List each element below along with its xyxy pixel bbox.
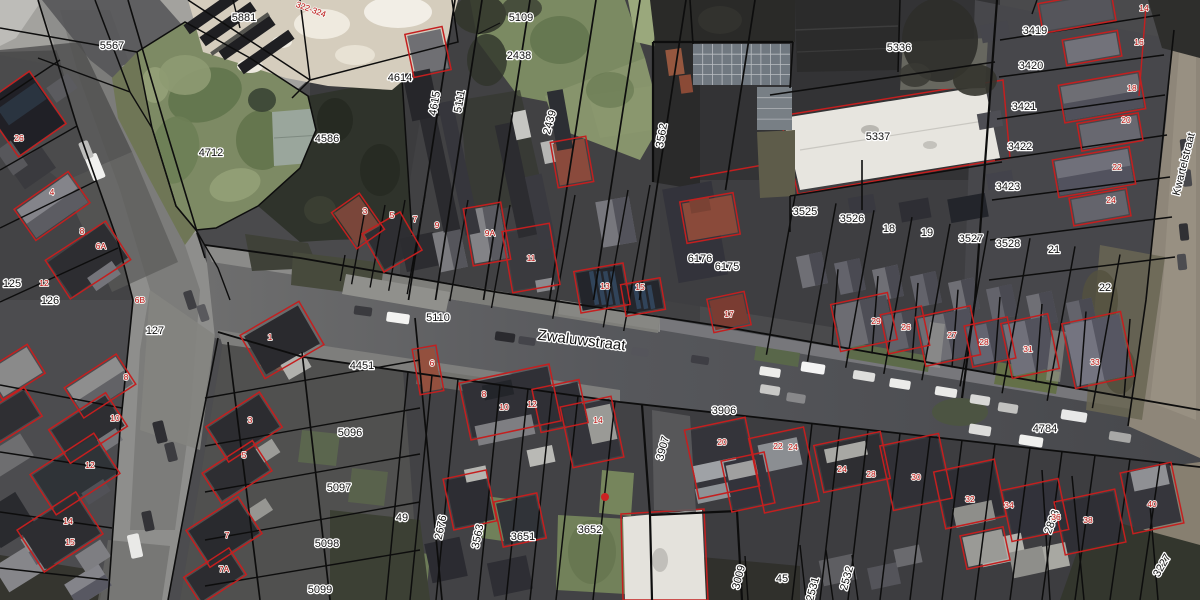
svg-text:15: 15: [65, 537, 75, 547]
svg-text:5: 5: [390, 210, 395, 220]
svg-text:28: 28: [979, 337, 989, 347]
svg-text:7A: 7A: [219, 564, 230, 574]
svg-text:7: 7: [225, 530, 230, 540]
svg-text:13: 13: [600, 281, 610, 291]
svg-text:5567: 5567: [100, 40, 124, 52]
svg-text:40: 40: [1147, 499, 1157, 509]
svg-text:14: 14: [1139, 3, 1149, 13]
svg-text:28: 28: [866, 469, 876, 479]
svg-text:4614: 4614: [388, 72, 412, 84]
svg-text:4451: 4451: [350, 360, 374, 372]
svg-text:30: 30: [911, 472, 921, 482]
svg-text:5881: 5881: [232, 12, 256, 24]
svg-text:5337: 5337: [866, 131, 890, 143]
svg-text:45: 45: [776, 573, 788, 585]
svg-text:8: 8: [124, 372, 129, 382]
svg-text:9A: 9A: [485, 228, 496, 238]
svg-text:8: 8: [482, 389, 487, 399]
svg-text:3526: 3526: [840, 213, 864, 225]
svg-text:127: 127: [146, 325, 164, 337]
svg-text:5336: 5336: [887, 42, 911, 54]
svg-text:32: 32: [965, 494, 975, 504]
svg-text:22: 22: [773, 441, 783, 451]
svg-text:20: 20: [717, 437, 727, 447]
svg-text:10: 10: [499, 402, 509, 412]
svg-text:5110: 5110: [426, 312, 450, 324]
svg-text:3: 3: [248, 415, 253, 425]
svg-text:4784: 4784: [1033, 423, 1057, 435]
svg-text:4586: 4586: [315, 133, 339, 145]
svg-text:7: 7: [413, 214, 418, 224]
svg-text:19: 19: [921, 227, 933, 239]
svg-text:29: 29: [871, 316, 881, 326]
svg-text:3652: 3652: [578, 524, 602, 536]
svg-text:5097: 5097: [327, 482, 351, 494]
svg-text:22: 22: [1112, 162, 1122, 172]
svg-text:126: 126: [41, 295, 59, 307]
svg-text:15: 15: [635, 282, 645, 292]
svg-text:31: 31: [1023, 344, 1033, 354]
svg-text:6A: 6A: [96, 241, 107, 251]
svg-text:3906: 3906: [712, 405, 736, 417]
svg-text:5098: 5098: [315, 538, 339, 550]
svg-text:21: 21: [1048, 244, 1060, 256]
svg-text:22: 22: [1099, 282, 1111, 294]
svg-text:6175: 6175: [715, 261, 739, 273]
svg-text:3423: 3423: [996, 181, 1020, 193]
svg-text:4: 4: [50, 187, 55, 197]
svg-text:33: 33: [1090, 357, 1100, 367]
svg-text:14: 14: [593, 415, 603, 425]
svg-text:5099: 5099: [308, 584, 332, 596]
svg-text:3422: 3422: [1008, 141, 1032, 153]
svg-text:27: 27: [947, 330, 957, 340]
svg-text:3651: 3651: [511, 531, 535, 543]
svg-text:6B: 6B: [135, 295, 146, 305]
svg-text:34: 34: [1004, 500, 1014, 510]
svg-text:3528: 3528: [996, 238, 1020, 250]
svg-text:4712: 4712: [199, 147, 223, 159]
svg-text:26: 26: [14, 133, 24, 143]
svg-text:16: 16: [1134, 37, 1144, 47]
svg-text:18: 18: [883, 223, 895, 235]
svg-text:3: 3: [363, 206, 368, 216]
svg-text:3420: 3420: [1019, 60, 1043, 72]
svg-text:6: 6: [430, 358, 435, 368]
svg-text:3525: 3525: [793, 206, 817, 218]
svg-text:2438: 2438: [507, 50, 531, 62]
svg-text:3421: 3421: [1012, 101, 1036, 113]
svg-text:24: 24: [1106, 195, 1116, 205]
svg-text:49: 49: [396, 512, 408, 524]
svg-text:26: 26: [901, 322, 911, 332]
svg-text:24: 24: [788, 442, 798, 452]
svg-text:3419: 3419: [1023, 25, 1047, 37]
svg-text:5: 5: [242, 450, 247, 460]
svg-text:12: 12: [39, 278, 49, 288]
svg-text:3527: 3527: [959, 233, 983, 245]
svg-text:9: 9: [435, 220, 440, 230]
svg-text:12: 12: [527, 399, 537, 409]
svg-text:20: 20: [1121, 115, 1131, 125]
svg-text:11: 11: [527, 253, 536, 263]
svg-text:1: 1: [268, 332, 273, 342]
svg-text:38: 38: [1083, 515, 1093, 525]
svg-text:12: 12: [85, 460, 95, 470]
svg-text:24: 24: [837, 464, 847, 474]
svg-text:18: 18: [1127, 83, 1137, 93]
svg-text:5096: 5096: [338, 427, 362, 439]
svg-text:6176: 6176: [688, 253, 712, 265]
svg-text:125: 125: [3, 278, 21, 290]
svg-text:17: 17: [724, 309, 734, 319]
svg-text:14: 14: [63, 516, 73, 526]
svg-text:36: 36: [1051, 512, 1061, 522]
svg-text:8: 8: [80, 226, 85, 236]
svg-text:10: 10: [110, 413, 120, 423]
svg-text:5109: 5109: [509, 12, 533, 24]
